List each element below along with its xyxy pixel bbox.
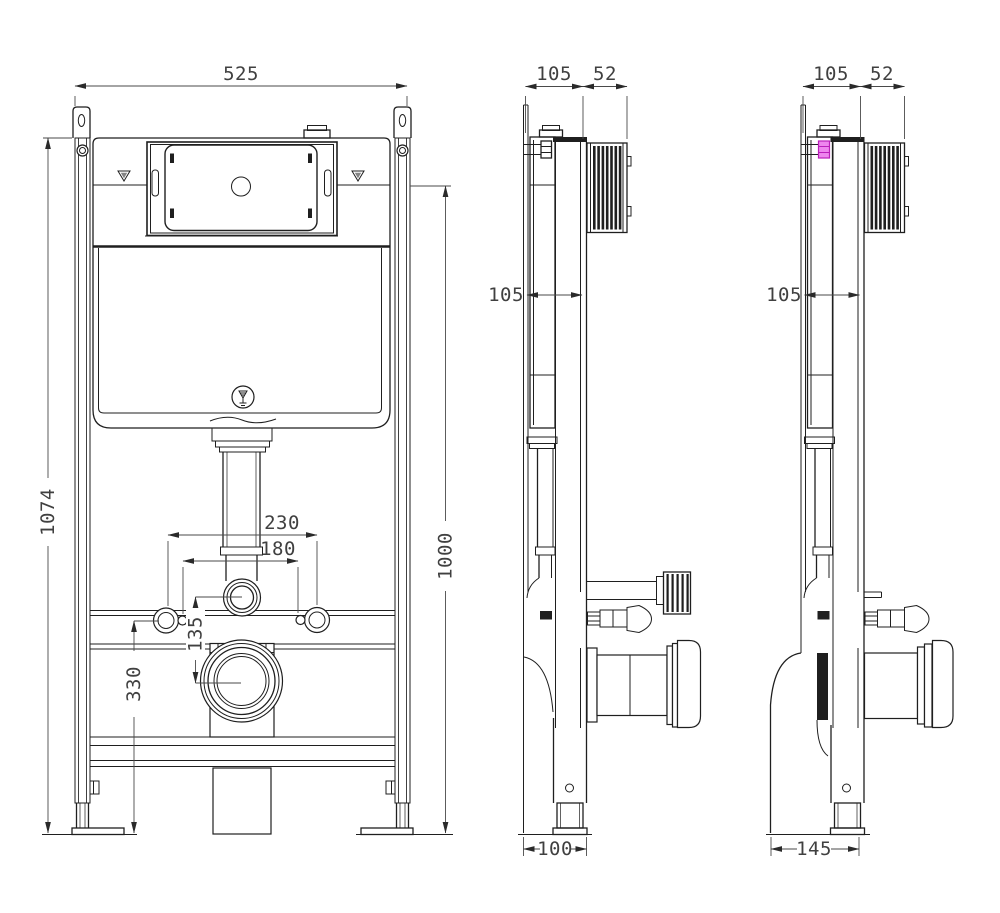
inspection-panel xyxy=(147,142,337,236)
sv1-fill-valve xyxy=(588,606,652,633)
fixing-hole-left xyxy=(154,608,188,633)
lower-cross-struts xyxy=(90,737,395,767)
wall-bracket-left xyxy=(73,107,90,138)
sv2-push-plate-block xyxy=(865,143,909,233)
dim-label-sv2-52: 52 xyxy=(870,63,894,85)
dim-label-135: 135 xyxy=(185,616,207,652)
sv2-dim-outlet-offset: 145 xyxy=(771,837,859,860)
adjustable-foot-left xyxy=(72,803,124,835)
sv1-waste-connector xyxy=(587,641,701,728)
sv2-leg-foot xyxy=(766,725,870,835)
dim-label-sv2-105-top: 105 xyxy=(813,63,849,85)
sv2-frame-rail xyxy=(831,137,865,803)
dim-label-sv1-105-mid: 105 xyxy=(488,284,524,306)
waste-outlet-socket xyxy=(201,640,283,722)
wall-bracket-right xyxy=(394,107,411,138)
sv2-dim-cistern-depth: 105 xyxy=(766,284,859,306)
side-view-center: 105 52 105 100 xyxy=(488,63,700,860)
dim-front-width: 525 xyxy=(75,63,407,106)
rail-screw-left xyxy=(77,145,88,156)
dim-front-fixing-height: 1000 xyxy=(410,186,457,833)
rail-screw-right xyxy=(397,145,408,156)
drain-duct xyxy=(213,768,271,834)
dim-label-sv1-105-top: 105 xyxy=(536,63,572,85)
sv2-water-inlet-stub xyxy=(865,592,882,598)
sv1-dim-plate-depth: 52 xyxy=(583,63,627,139)
dim-label-230: 230 xyxy=(264,512,300,534)
dim-label-330: 330 xyxy=(123,666,145,702)
sv2-outlet-elbow xyxy=(771,653,829,833)
sv2-flush-bend xyxy=(804,449,833,620)
cistern-frame-drawing: 525 1074 1000 230 180 xyxy=(0,0,1000,913)
front-view: 525 1074 1000 230 180 xyxy=(37,63,457,835)
sv2-fill-valve xyxy=(865,606,929,633)
flush-triangle-mark-right xyxy=(352,171,364,181)
sv1-frame-rail xyxy=(553,137,587,803)
flush-triangle-mark-left xyxy=(118,171,130,181)
dim-front-total-height: 1074 xyxy=(37,138,72,833)
sv1-dim-frame-depth: 105 xyxy=(526,63,584,139)
drain-valve-symbol xyxy=(232,386,254,408)
dim-label-145: 145 xyxy=(796,838,832,860)
sv2-cistern-profile xyxy=(805,137,835,449)
technical-drawing-canvas: 525 1074 1000 230 180 xyxy=(0,0,1000,913)
sv1-wall-rail xyxy=(524,105,529,833)
sv1-cistern-profile xyxy=(527,137,557,449)
right-frame-rail xyxy=(395,138,410,803)
sv2-top-cap xyxy=(817,126,840,138)
filler-cap-top xyxy=(304,126,330,139)
sv2-dim-frame-depth: 105 xyxy=(803,63,861,139)
side-view-right: 105 52 105 145 xyxy=(766,63,953,860)
sv2-dim-plate-depth: 52 xyxy=(861,63,905,139)
dim-label-525: 525 xyxy=(223,63,259,85)
sv1-push-plate-block xyxy=(587,143,631,233)
leg-clip-right xyxy=(386,781,395,794)
flush-pipe-socket xyxy=(224,579,261,616)
fixing-hole-right xyxy=(296,608,330,633)
sv1-top-cap xyxy=(540,126,563,138)
sv1-leg-foot xyxy=(518,718,592,835)
sv2-wall-rail xyxy=(801,105,806,653)
dim-label-180: 180 xyxy=(260,538,296,560)
dim-label-sv1-52: 52 xyxy=(593,63,617,85)
dim-outlet-center-height: 330 xyxy=(123,621,159,833)
dim-label-1000: 1000 xyxy=(435,532,457,580)
sv1-dim-outlet-offset: 100 xyxy=(524,837,587,860)
sv1-dim-cistern-depth: 105 xyxy=(488,284,582,306)
sv2-waste-connector xyxy=(865,641,954,728)
dim-label-1074: 1074 xyxy=(37,488,59,536)
sv1-flush-bend xyxy=(524,449,555,713)
left-frame-rail xyxy=(75,138,90,803)
dim-label-100: 100 xyxy=(537,838,573,860)
adjustable-foot-right xyxy=(361,803,413,835)
dim-label-sv2-105-mid: 105 xyxy=(766,284,802,306)
sv1-water-inlet-pipe xyxy=(587,572,691,614)
leg-clip-left xyxy=(90,781,99,794)
